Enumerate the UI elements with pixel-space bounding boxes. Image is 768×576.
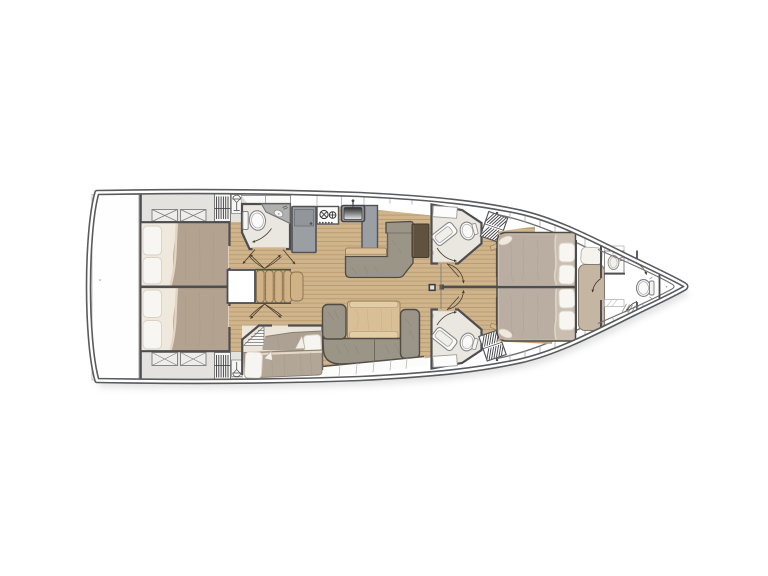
svg-text:90: 90 (431, 314, 435, 318)
svg-text:90: 90 (431, 251, 435, 255)
